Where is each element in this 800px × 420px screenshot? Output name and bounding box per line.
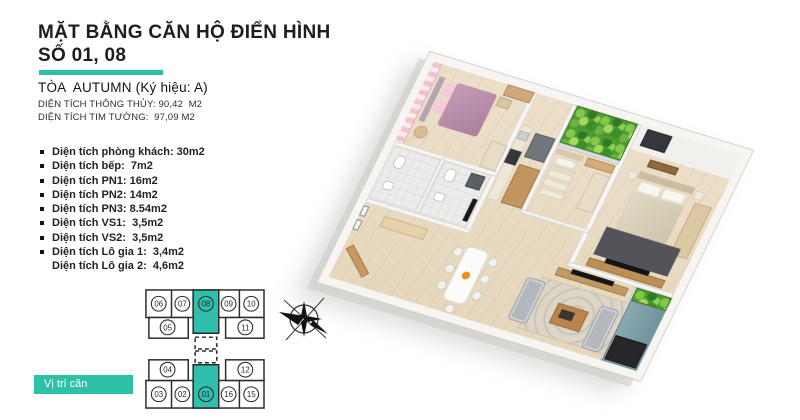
location-label: Vị trí căn xyxy=(34,375,133,394)
net-area-line: DIỆN TÍCH THÔNG THỦY: 90,42 M2 xyxy=(38,99,202,110)
unit-number: 16 xyxy=(224,390,233,399)
list-item: Diện tích PN3: 8.54m2 xyxy=(40,203,270,217)
list-item: Diện tích Lô gia 1: 3,4m2 xyxy=(40,246,270,260)
unit-number: 02 xyxy=(178,390,187,399)
unit-number: 03 xyxy=(154,390,163,399)
unit-number: 04 xyxy=(163,366,172,375)
unit-number: 11 xyxy=(241,323,249,332)
core-dashed-bottom xyxy=(195,351,217,363)
bed2-nightstand xyxy=(626,170,639,181)
room-area-list: Diện tích phòng khách: 30m2 Diện tích bế… xyxy=(40,146,270,275)
list-item: Diện tích PN1: 16m2 xyxy=(40,175,270,189)
bed1-nightstand xyxy=(495,97,512,110)
apartment-floor xyxy=(318,52,754,381)
floor-plan-3d xyxy=(318,52,754,381)
unit-location-map: 06 07 08 09 10 05 11 04 12 03 02 01 16 1… xyxy=(137,288,269,410)
wall xyxy=(520,209,590,234)
gross-area-line: DIỆN TÍCH TIM TƯỜNG: 97,09 M2 xyxy=(38,112,195,123)
list-item: Diện tích PN2: 14m2 xyxy=(40,189,270,203)
wall-art-frame xyxy=(359,205,370,217)
unit-number: 07 xyxy=(178,300,187,309)
unit-number: 01 xyxy=(202,390,211,399)
building-name: TÒA AUTUMN (Ký hiệu: A) xyxy=(38,80,208,95)
list-item: Diện tích VS2: 3,5m2 xyxy=(40,232,270,246)
unit-number: 15 xyxy=(247,390,256,399)
unit-number: 12 xyxy=(241,366,250,375)
bedroom1-round-table xyxy=(412,124,430,140)
bed2-nightstand xyxy=(692,190,705,201)
list-item: Diện tích phòng khách: 30m2 xyxy=(40,146,270,160)
dining-chair xyxy=(478,273,492,285)
list-item: Diện tích VS1: 3,5m2 xyxy=(40,217,270,231)
dining-chair xyxy=(470,290,484,302)
page-title-line1: MẶT BẰNG CĂN HỘ ĐIỂN HÌNH xyxy=(38,21,331,44)
dining-chair xyxy=(486,257,500,269)
compass-icon xyxy=(276,294,332,344)
title-underline-bar xyxy=(39,70,163,75)
floorplan-sheet: MẶT BẰNG CĂN HỘ ĐIỂN HÌNH SỐ 01, 08 TÒA … xyxy=(0,0,800,420)
unit-number: 06 xyxy=(154,300,163,309)
list-item: Diện tích bếp: 7m2 xyxy=(40,160,270,174)
entry-door xyxy=(346,244,369,277)
unit-number: 08 xyxy=(202,300,211,309)
wall-art-frame xyxy=(352,219,363,231)
page-title-line2: SỐ 01, 08 xyxy=(38,44,331,67)
unit-number: 09 xyxy=(224,300,233,309)
unit-number: 05 xyxy=(163,323,172,332)
core-dashed-top xyxy=(195,337,217,349)
page-title: MẶT BẰNG CĂN HỘ ĐIỂN HÌNH SỐ 01, 08 xyxy=(38,21,331,67)
list-item: Diện tích Lô gia 2: 4,6m2 xyxy=(40,260,270,274)
unit-number: 10 xyxy=(247,300,256,309)
dining-chair xyxy=(443,303,457,315)
